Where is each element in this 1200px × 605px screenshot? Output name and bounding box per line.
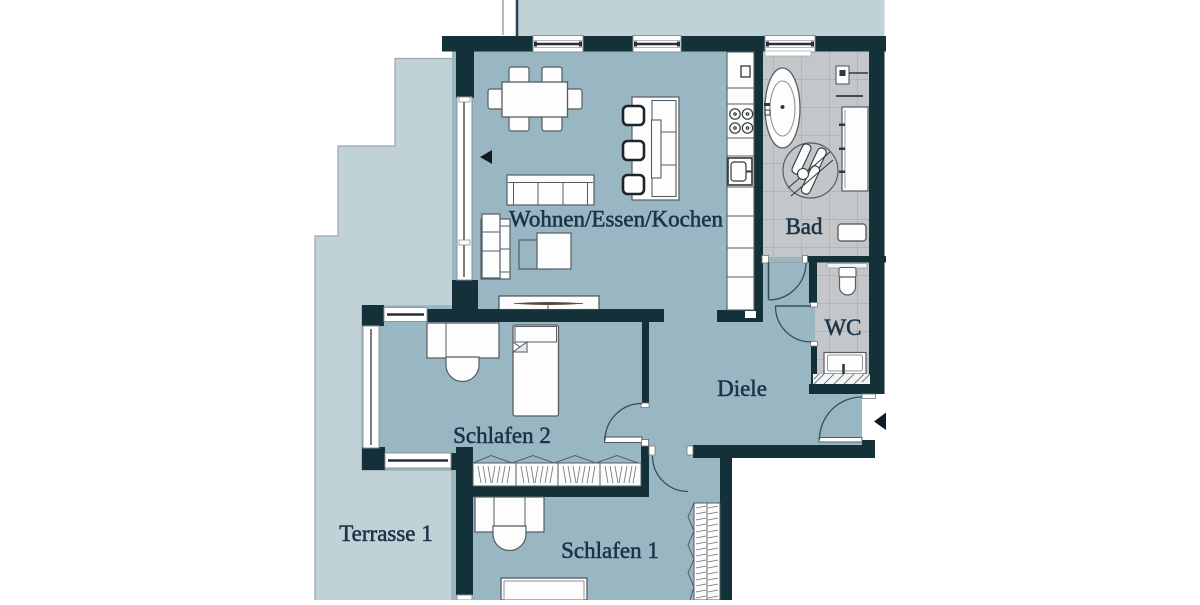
svg-text:Schlafen 2: Schlafen 2 [453, 423, 551, 448]
svg-text:Wohnen/Essen/Kochen: Wohnen/Essen/Kochen [509, 207, 724, 232]
svg-text:Schlafen 1: Schlafen 1 [561, 538, 659, 563]
svg-text:Diele: Diele [717, 376, 767, 401]
svg-text:Terrasse 1: Terrasse 1 [339, 521, 433, 546]
svg-text:Bad: Bad [785, 214, 823, 239]
svg-text:WC: WC [824, 315, 861, 340]
